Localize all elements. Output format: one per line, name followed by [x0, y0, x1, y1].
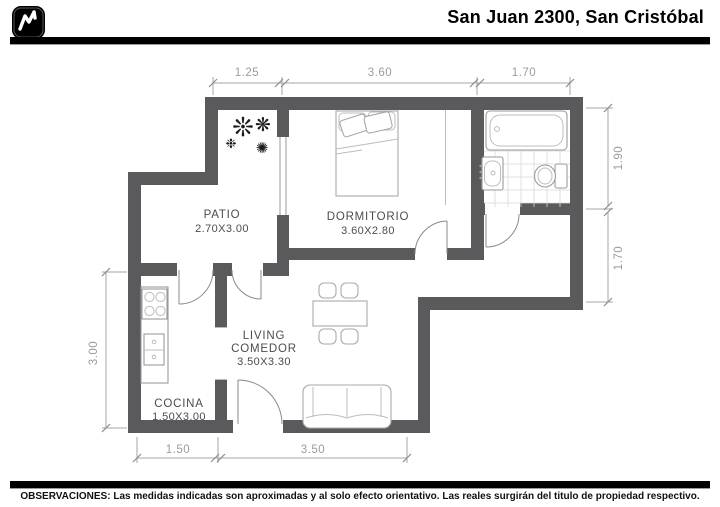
floorplan-page: ❊ ❋ ✺ ❉ PATIO 2.70X3.00 DORMITORIO 3.60X…	[0, 0, 720, 507]
plant-icon: ❋	[255, 114, 271, 136]
dimension-left: 3.00	[88, 268, 127, 432]
chair	[341, 283, 358, 298]
label-patio: PATIO	[204, 209, 241, 221]
label-dormitorio: DORMITORIO	[327, 211, 410, 223]
page-title: San Juan 2300, San Cristóbal	[447, 7, 704, 28]
patio-plants: ❊ ❋ ✺ ❉	[226, 113, 271, 157]
wall-patio-bottom-b	[213, 263, 232, 276]
dim-right-2: 1.70	[613, 246, 625, 270]
dim-bottom-1: 1.50	[166, 444, 190, 456]
door-patio-living	[232, 270, 261, 299]
stove	[142, 289, 167, 319]
wall-patio-bottom-a	[128, 263, 177, 276]
door-entrance	[238, 380, 282, 424]
kitchen-fixtures	[141, 287, 168, 383]
plant-icon: ❉	[226, 137, 237, 152]
sofa	[303, 385, 391, 428]
bathroom-fixtures	[479, 111, 570, 207]
label-dormitorio-size: 3.60X2.80	[341, 225, 395, 237]
wall-living-right	[418, 297, 430, 433]
label-living-size: 3.50X3.30	[237, 356, 291, 368]
dim-left-1: 3.00	[88, 341, 100, 365]
toilet	[535, 164, 568, 188]
label-patio-size: 2.70X3.00	[195, 223, 249, 235]
dining-set	[313, 283, 367, 344]
dim-bottom-2: 3.50	[301, 444, 325, 456]
wall-step-left	[128, 172, 218, 185]
dimension-right: 1.90 1.70	[586, 104, 625, 306]
wall-right-upper	[570, 97, 583, 310]
floorplan-canvas: ❊ ❋ ✺ ❉ PATIO 2.70X3.00 DORMITORIO 3.60X…	[0, 0, 720, 507]
kitchen-sink	[144, 334, 164, 365]
wall-top	[205, 97, 583, 110]
chair	[319, 329, 336, 344]
wall-dorm-bottom	[277, 248, 415, 260]
dim-top-1: 1.25	[235, 67, 259, 79]
bathtub	[486, 111, 567, 150]
dimension-bottom: 1.50 3.50	[133, 437, 411, 463]
bathroom-sink	[479, 157, 503, 190]
label-cocina: COCINA	[154, 398, 204, 410]
dimension-top: 1.25 3.60 1.70	[209, 67, 574, 95]
brand-logo-icon	[12, 6, 45, 39]
label-living-1: LIVING	[243, 330, 286, 342]
wall-left-lower	[128, 172, 141, 433]
wall-left-upper	[205, 97, 218, 185]
wall-bath-bottom-b	[520, 203, 570, 215]
header-divider	[10, 37, 710, 45]
dim-right-1: 1.90	[613, 146, 625, 170]
observations-note: OBSERVACIONES: Las medidas indicadas son…	[0, 491, 720, 502]
wall-step-right	[430, 297, 583, 310]
door-bathroom	[486, 214, 519, 247]
wall-kitchen-living-upper	[215, 276, 227, 327]
chair	[319, 283, 336, 298]
door-patio-kitchen	[179, 270, 213, 304]
chair	[341, 329, 358, 344]
wall-patio-dorm-upper	[277, 110, 289, 137]
label-living-2: COMEDOR	[231, 343, 297, 355]
bed	[336, 111, 398, 196]
label-cocina-size: 1.50X3.00	[152, 411, 206, 423]
wall-bath-bottom-a	[471, 203, 485, 215]
door-dormitorio	[415, 221, 447, 254]
footer-divider	[10, 481, 710, 489]
dim-top-3: 1.70	[512, 67, 536, 79]
wall-kitchen-living-lower	[215, 380, 227, 420]
dining-table	[313, 301, 367, 326]
dim-top-2: 3.60	[368, 67, 392, 79]
plant-icon: ✺	[256, 139, 269, 157]
wall-patio-bottom-c	[263, 263, 289, 276]
